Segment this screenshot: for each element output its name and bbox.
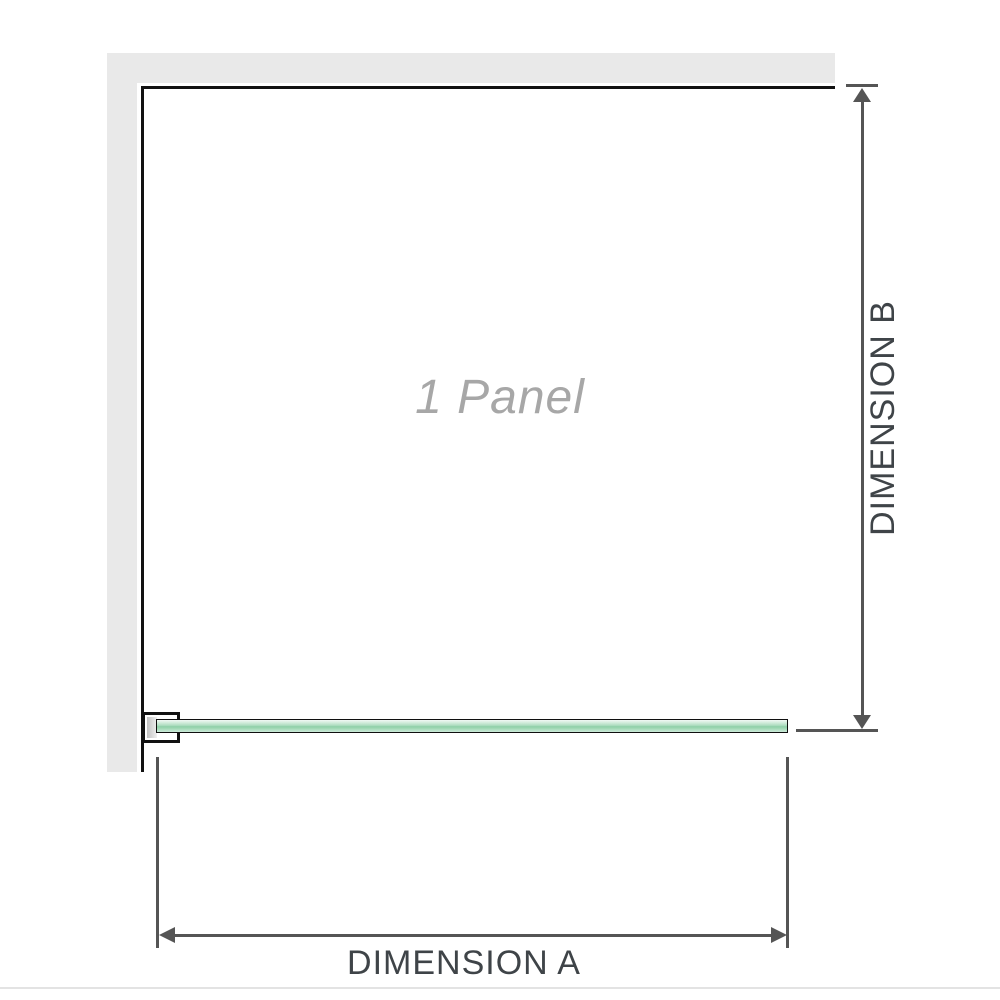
glass-panel (156, 719, 788, 733)
arrowhead-right-icon (771, 927, 787, 943)
dimension-a-line (173, 934, 773, 937)
bottom-divider (0, 987, 1000, 989)
dimension-a-tick-left (156, 757, 159, 948)
wall-left (107, 53, 137, 772)
wall-edge-left-line (141, 86, 144, 772)
wall-edge-top-line (141, 86, 835, 89)
panel-diagram: DIMENSION B DIMENSION A 1 Panel (0, 0, 1000, 1000)
panel-count-label: 1 Panel (350, 370, 650, 426)
arrowhead-down-icon (853, 715, 871, 729)
dimension-b-tick-bottom (796, 729, 878, 732)
arrowhead-left-icon (159, 927, 175, 943)
dimension-b-label: DIMENSION B (864, 268, 902, 568)
arrowhead-up-icon (853, 88, 871, 102)
wall-top (107, 53, 835, 83)
dimension-a-tick-right (786, 757, 789, 948)
dimension-b-tick-top (846, 84, 878, 87)
dimension-a-label: DIMENSION A (264, 944, 664, 982)
